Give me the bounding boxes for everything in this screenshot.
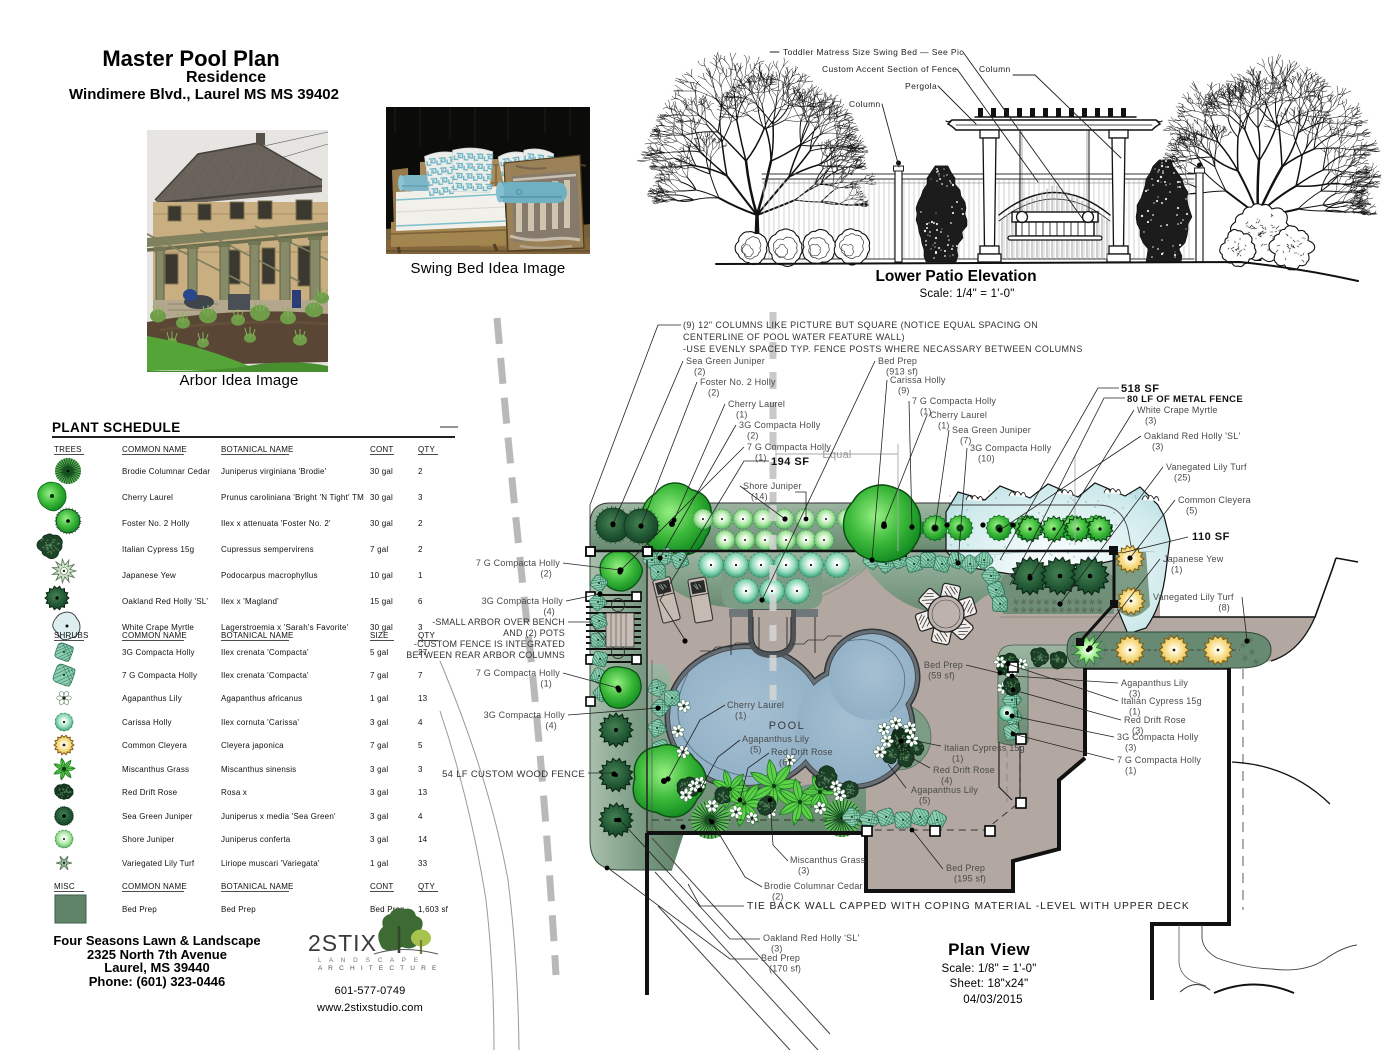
svg-text:(14): (14) xyxy=(751,492,768,502)
svg-text:L A N D S C A P E: L A N D S C A P E xyxy=(318,957,421,964)
svg-text:Phone: (601) 323-0446: Phone: (601) 323-0446 xyxy=(89,974,226,989)
svg-text:13: 13 xyxy=(418,694,428,703)
svg-text:White Crape Myrtle: White Crape Myrtle xyxy=(1137,405,1218,415)
svg-text:Japanese Yew: Japanese Yew xyxy=(1163,554,1224,564)
svg-text:5: 5 xyxy=(418,741,423,750)
svg-text:(2): (2) xyxy=(772,892,784,902)
svg-text:7: 7 xyxy=(418,671,423,680)
svg-text:CONT: CONT xyxy=(370,445,393,454)
svg-text:BOTANICAL NAME: BOTANICAL NAME xyxy=(221,631,294,640)
svg-text:Ilex crenata 'Compacta': Ilex crenata 'Compacta' xyxy=(221,648,309,657)
svg-text:Italian Cypress 15g: Italian Cypress 15g xyxy=(122,545,194,554)
svg-text:7 gal: 7 gal xyxy=(370,741,388,750)
svg-text:3: 3 xyxy=(418,765,423,774)
svg-text:Italian Cypress 15g: Italian Cypress 15g xyxy=(944,743,1025,753)
svg-text:Column: Column xyxy=(979,64,1011,74)
svg-text:194 SF: 194 SF xyxy=(771,456,809,468)
svg-text:Foster No. 2 Holly: Foster No. 2 Holly xyxy=(700,377,776,387)
svg-text:Arbor Idea Image: Arbor Idea Image xyxy=(179,372,298,389)
svg-text:QTY: QTY xyxy=(418,882,436,891)
svg-text:Common Cleyera: Common Cleyera xyxy=(122,741,187,750)
svg-text:AND (2) POTS: AND (2) POTS xyxy=(503,628,565,638)
svg-text:Agapanthus africanus: Agapanthus africanus xyxy=(221,694,302,703)
svg-text:3G Compacta Holly: 3G Compacta Holly xyxy=(970,443,1052,453)
svg-text:Bed Prep: Bed Prep xyxy=(878,356,917,366)
svg-text:Bed Prep: Bed Prep xyxy=(221,905,256,914)
svg-text:2: 2 xyxy=(418,545,423,554)
svg-text:Miscanthus Grass: Miscanthus Grass xyxy=(790,855,866,865)
svg-text:Red Drift Rose: Red Drift Rose xyxy=(122,788,178,797)
svg-text:601-577-0749: 601-577-0749 xyxy=(335,985,406,997)
svg-text:Lower Patio Elevation: Lower Patio Elevation xyxy=(875,268,1036,285)
svg-text:Residence: Residence xyxy=(186,69,266,86)
svg-text:Vanegated Lily Turf: Vanegated Lily Turf xyxy=(1153,592,1234,602)
svg-text:3 gal: 3 gal xyxy=(370,812,388,821)
svg-text:-SMALL ARBOR OVER BENCH: -SMALL ARBOR OVER BENCH xyxy=(432,617,565,627)
svg-text:(9): (9) xyxy=(898,386,910,396)
svg-text:Brodie Columnar Cedar: Brodie Columnar Cedar xyxy=(122,467,210,476)
svg-text:(5): (5) xyxy=(919,796,931,806)
svg-text:30 gal: 30 gal xyxy=(370,493,393,502)
svg-text:Cherry Laurel: Cherry Laurel xyxy=(930,410,987,420)
svg-text:Column: Column xyxy=(849,99,881,109)
svg-text:Pergola: Pergola xyxy=(905,81,937,91)
svg-text:COMMON NAME: COMMON NAME xyxy=(122,882,187,891)
svg-text:7 G Compacta Holly: 7 G Compacta Holly xyxy=(122,671,197,680)
svg-text:1,603 sf: 1,603 sf xyxy=(418,905,449,914)
svg-text:3 gal: 3 gal xyxy=(370,835,388,844)
svg-text:Bed Prep: Bed Prep xyxy=(122,905,157,914)
svg-text:(1): (1) xyxy=(540,679,552,689)
svg-text:Juniperus virginiana 'Brodie': Juniperus virginiana 'Brodie' xyxy=(221,467,327,476)
svg-text:7 G Compacta Holly: 7 G Compacta Holly xyxy=(476,558,560,568)
svg-text:(4): (4) xyxy=(941,776,953,786)
svg-text:CONT: CONT xyxy=(370,882,393,891)
svg-text:BOTANICAL NAME: BOTANICAL NAME xyxy=(221,882,294,891)
svg-text:SIZE: SIZE xyxy=(370,631,389,640)
svg-text:30 gal: 30 gal xyxy=(370,467,393,476)
svg-text:Red Drift Rose: Red Drift Rose xyxy=(771,747,833,757)
svg-text:3G Compacta Holly: 3G Compacta Holly xyxy=(484,710,566,720)
svg-text:33: 33 xyxy=(418,859,428,868)
svg-text:Sea Green Juniper: Sea Green Juniper xyxy=(952,425,1031,435)
svg-text:3 gal: 3 gal xyxy=(370,765,388,774)
svg-text:Cleyera japonica: Cleyera japonica xyxy=(221,741,284,750)
svg-text:Swing Bed Idea Image: Swing Bed Idea Image xyxy=(411,260,566,277)
svg-text:Japanese Yew: Japanese Yew xyxy=(122,571,176,580)
svg-text:(59 sf): (59 sf) xyxy=(928,671,955,681)
svg-text:Red Drift Rose: Red Drift Rose xyxy=(933,765,995,775)
svg-text:4: 4 xyxy=(418,718,423,727)
svg-text:54 LF CUSTOM WOOD FENCE: 54 LF CUSTOM WOOD FENCE xyxy=(442,769,585,780)
svg-text:Juniperus conferta: Juniperus conferta xyxy=(221,835,291,844)
svg-text:PLANT SCHEDULE: PLANT SCHEDULE xyxy=(52,420,181,435)
svg-text:(25): (25) xyxy=(1174,473,1191,483)
svg-text:Oakland Red Holly 'SL': Oakland Red Holly 'SL' xyxy=(1144,431,1240,441)
svg-text:(2): (2) xyxy=(747,431,759,441)
svg-text:Sea Green Juniper: Sea Green Juniper xyxy=(686,356,765,366)
svg-text:Sheet: 18"x24": Sheet: 18"x24" xyxy=(950,978,1029,990)
svg-text:www.2stixstudio.com: www.2stixstudio.com xyxy=(316,1002,423,1014)
svg-text:110 SF: 110 SF xyxy=(1192,531,1230,543)
svg-text:3G Compacta Holly: 3G Compacta Holly xyxy=(482,596,564,606)
svg-text:(4): (4) xyxy=(545,721,557,731)
svg-text:Common Cleyera: Common Cleyera xyxy=(1178,495,1251,505)
svg-text:Podocarpus macrophyllus: Podocarpus macrophyllus xyxy=(221,571,318,580)
svg-text:7 G Compacta Holly: 7 G Compacta Holly xyxy=(747,442,831,452)
svg-text:(3): (3) xyxy=(771,944,783,954)
svg-text:Miscanthus sinensis: Miscanthus sinensis xyxy=(221,765,296,774)
svg-text:7 G Compacta Holly: 7 G Compacta Holly xyxy=(1117,755,1201,765)
svg-text:3G Compacta Holly: 3G Compacta Holly xyxy=(739,420,821,430)
svg-text:SHRUBS: SHRUBS xyxy=(54,631,89,640)
svg-text:COMMON NAME: COMMON NAME xyxy=(122,631,187,640)
svg-text:(170 sf): (170 sf) xyxy=(769,964,801,974)
svg-text:Carissa Holly: Carissa Holly xyxy=(890,375,946,385)
svg-text:(1): (1) xyxy=(1171,565,1183,575)
svg-text:TIE BACK WALL CAPPED WITH COPI: TIE BACK WALL CAPPED WITH COPING MATERIA… xyxy=(747,901,1190,912)
svg-text:13: 13 xyxy=(418,788,428,797)
svg-text:10 gal: 10 gal xyxy=(370,571,393,580)
svg-text:QTY: QTY xyxy=(418,445,436,454)
svg-text:(3): (3) xyxy=(1152,442,1164,452)
svg-text:3G Compacta Holly: 3G Compacta Holly xyxy=(122,648,195,657)
svg-text:3 gal: 3 gal xyxy=(370,718,388,727)
svg-text:BOTANICAL NAME: BOTANICAL NAME xyxy=(221,445,294,454)
svg-text:Brodie Columnar Cedar: Brodie Columnar Cedar xyxy=(764,881,863,891)
svg-text:Rosa x: Rosa x xyxy=(221,788,247,797)
svg-text:Ilex crenata 'Compacta': Ilex crenata 'Compacta' xyxy=(221,671,309,680)
svg-text:(195 sf): (195 sf) xyxy=(954,874,986,884)
svg-text:Red Drift Rose: Red Drift Rose xyxy=(1124,715,1186,725)
svg-text:(3): (3) xyxy=(1145,416,1157,426)
svg-text:Four Seasons Lawn & Landscape: Four Seasons Lawn & Landscape xyxy=(53,933,260,948)
svg-text:Agapanthus Lily: Agapanthus Lily xyxy=(911,785,978,795)
svg-text:15 gal: 15 gal xyxy=(370,597,393,606)
svg-text:-USE EVENLY SPACED TYP. FENCE: -USE EVENLY SPACED TYP. FENCE POSTS WHER… xyxy=(683,344,1083,354)
svg-text:(5): (5) xyxy=(750,745,762,755)
svg-text:Cherry Laurel: Cherry Laurel xyxy=(728,399,785,409)
svg-text:Agapanthus Lily: Agapanthus Lily xyxy=(742,734,809,744)
svg-text:1: 1 xyxy=(418,571,423,580)
svg-text:Agapanthus Lily: Agapanthus Lily xyxy=(122,694,182,703)
svg-text:04/03/2015: 04/03/2015 xyxy=(963,994,1023,1006)
svg-text:30 gal: 30 gal xyxy=(370,519,393,528)
svg-text:Foster No. 2 Holly: Foster No. 2 Holly xyxy=(122,519,190,528)
svg-text:Master Pool Plan: Master Pool Plan xyxy=(102,46,279,71)
svg-text:14: 14 xyxy=(418,835,428,844)
svg-text:Agapanthus Lily: Agapanthus Lily xyxy=(1121,678,1188,688)
svg-text:(1): (1) xyxy=(938,421,950,431)
svg-text:A R C H I T E C T U R E: A R C H I T E C T U R E xyxy=(318,965,439,972)
svg-text:Shore Juniper: Shore Juniper xyxy=(122,835,175,844)
svg-text:(10): (10) xyxy=(978,454,995,464)
svg-text:(8): (8) xyxy=(1218,603,1230,613)
svg-text:Bed Prep: Bed Prep xyxy=(946,863,985,873)
svg-text:Ilex cornuta 'Carissa': Ilex cornuta 'Carissa' xyxy=(221,718,299,727)
svg-text:3G Compacta Holly: 3G Compacta Holly xyxy=(1117,732,1199,742)
svg-text:Vanegated Lily Turf: Vanegated Lily Turf xyxy=(1166,462,1247,472)
svg-text:Laurel, MS 39440: Laurel, MS 39440 xyxy=(104,960,210,975)
svg-text:3: 3 xyxy=(418,493,423,502)
svg-text:Bed Prep: Bed Prep xyxy=(924,660,963,670)
svg-text:CENTERLINE OF POOL WATER FEATU: CENTERLINE OF POOL WATER FEATURE WALL) xyxy=(683,332,905,342)
svg-text:1 gal: 1 gal xyxy=(370,859,388,868)
svg-text:2: 2 xyxy=(418,519,423,528)
svg-text:Prunus caroliniana 'Bright 'N: Prunus caroliniana 'Bright 'N Tight' TM xyxy=(221,493,364,502)
svg-text:BETWEEN REAR ARBOR COLUMNS: BETWEEN REAR ARBOR COLUMNS xyxy=(406,650,565,660)
svg-text:5 gal: 5 gal xyxy=(370,648,388,657)
svg-text:Cherry Laurel: Cherry Laurel xyxy=(727,700,784,710)
svg-text:Windimere Blvd., Laurel MS MS: Windimere Blvd., Laurel MS MS 39402 xyxy=(69,86,339,103)
svg-text:Scale: 1/8" = 1'-0": Scale: 1/8" = 1'-0" xyxy=(941,963,1036,975)
svg-text:(1): (1) xyxy=(1125,766,1137,776)
svg-text:Oakland Red Holly 'SL': Oakland Red Holly 'SL' xyxy=(122,597,208,606)
svg-text:Bed Prep: Bed Prep xyxy=(761,953,800,963)
svg-text:(1): (1) xyxy=(952,754,964,764)
svg-text:7 gal: 7 gal xyxy=(370,671,388,680)
svg-text:(1): (1) xyxy=(735,711,747,721)
svg-text:(3): (3) xyxy=(1125,743,1137,753)
svg-text:(1): (1) xyxy=(736,410,748,420)
svg-text:4: 4 xyxy=(418,812,423,821)
svg-text:Variegated Lily Turf: Variegated Lily Turf xyxy=(122,859,195,868)
svg-text:Sea Green Juniper: Sea Green Juniper xyxy=(122,812,193,821)
svg-text:(9) 12" COLUMNS LIKE PICTURE B: (9) 12" COLUMNS LIKE PICTURE BUT SQUARE … xyxy=(683,320,1038,330)
svg-text:(4): (4) xyxy=(543,607,555,617)
svg-text:(3): (3) xyxy=(798,866,810,876)
svg-text:TREES: TREES xyxy=(54,445,82,454)
svg-text:2STIX: 2STIX xyxy=(308,930,377,956)
svg-text:6: 6 xyxy=(418,597,423,606)
svg-text:Ilex x 'Magland': Ilex x 'Magland' xyxy=(221,597,279,606)
svg-text:Toddler Matress Size Swing Bed: Toddler Matress Size Swing Bed — See Pic xyxy=(783,47,964,57)
svg-text:Juniperus x media 'Sea Green': Juniperus x media 'Sea Green' xyxy=(221,812,336,821)
svg-text:Scale: 1/4" = 1'-0": Scale: 1/4" = 1'-0" xyxy=(919,288,1014,300)
svg-text:Carissa Holly: Carissa Holly xyxy=(122,718,172,727)
svg-text:7 G Compacta Holly: 7 G Compacta Holly xyxy=(476,668,560,678)
svg-text:1 gal: 1 gal xyxy=(370,694,388,703)
svg-text:7 gal: 7 gal xyxy=(370,545,388,554)
svg-text:(5): (5) xyxy=(1186,506,1198,516)
svg-text:Cupressus sempervirens: Cupressus sempervirens xyxy=(221,545,314,554)
svg-text:80 LF OF METAL FENCE: 80 LF OF METAL FENCE xyxy=(1127,394,1243,405)
svg-text:Ilex x attenuata 'Foster No. 2: Ilex x attenuata 'Foster No. 2' xyxy=(221,519,331,528)
svg-text:7 G Compacta Holly: 7 G Compacta Holly xyxy=(912,396,996,406)
svg-text:3 gal: 3 gal xyxy=(370,788,388,797)
svg-text:(2): (2) xyxy=(694,367,706,377)
svg-text:Oakland Red Holly 'SL': Oakland Red Holly 'SL' xyxy=(763,933,859,943)
svg-text:COMMON NAME: COMMON NAME xyxy=(122,445,187,454)
svg-text:Cherry Laurel: Cherry Laurel xyxy=(122,493,173,502)
svg-text:(2): (2) xyxy=(708,388,720,398)
svg-text:-CUSTOM FENCE IS INTEGRATED: -CUSTOM FENCE IS INTEGRATED xyxy=(414,639,565,649)
svg-text:(6): (6) xyxy=(779,758,791,768)
svg-text:POOL: POOL xyxy=(769,720,806,732)
svg-text:MISC: MISC xyxy=(54,882,75,891)
svg-text:Italian Cypress 15g: Italian Cypress 15g xyxy=(1121,696,1202,706)
svg-text:Miscanthus Grass: Miscanthus Grass xyxy=(122,765,189,774)
svg-text:Custom Accent Section of Fence: Custom Accent Section of Fence xyxy=(822,64,957,74)
svg-text:Shore Juniper: Shore Juniper xyxy=(743,481,802,491)
svg-text:(2): (2) xyxy=(540,569,552,579)
svg-text:Liriope muscari 'Variegata': Liriope muscari 'Variegata' xyxy=(221,859,320,868)
svg-text:2: 2 xyxy=(418,467,423,476)
svg-text:Plan View: Plan View xyxy=(948,940,1030,959)
